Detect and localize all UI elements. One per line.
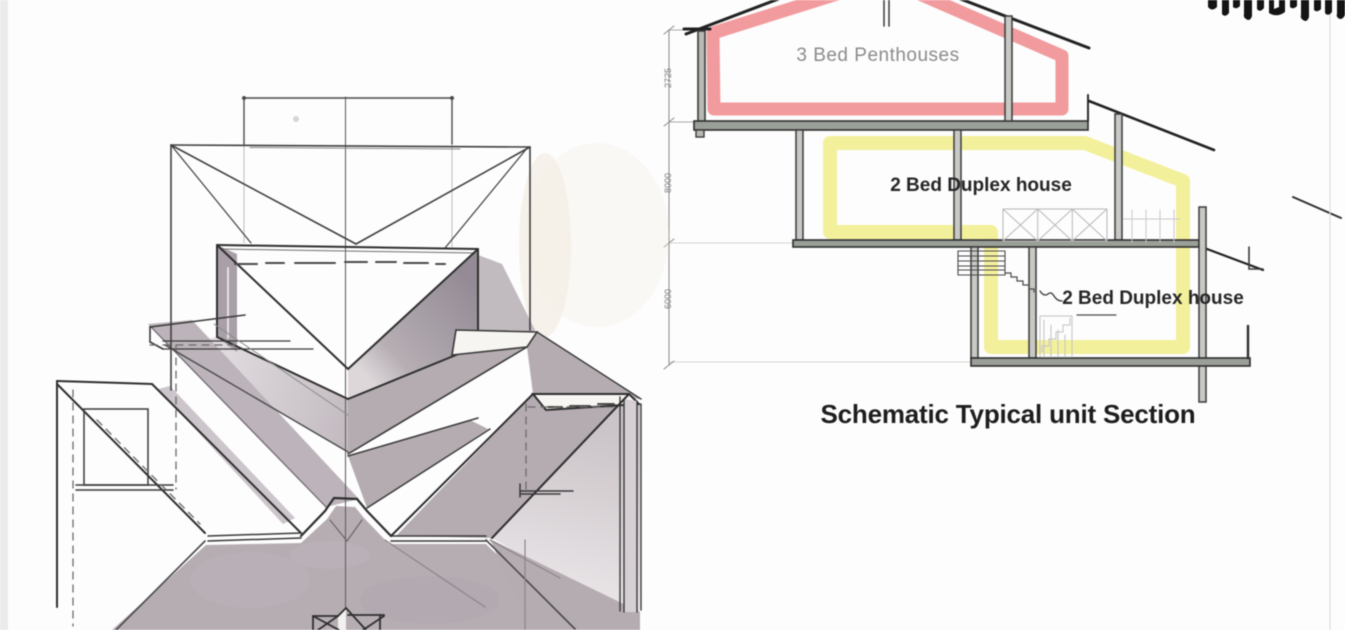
svg-text:Schematic Typical unit Section: Schematic Typical unit Section	[821, 399, 1196, 429]
svg-text:2 Bed Duplex house: 2 Bed Duplex house	[1062, 288, 1244, 309]
svg-text:2 Bed Duplex house: 2 Bed Duplex house	[890, 175, 1072, 196]
svg-text:3 Bed Penthouses: 3 Bed Penthouses	[796, 45, 959, 66]
svg-text:6000: 6000	[663, 289, 673, 309]
svg-text:2725: 2725	[663, 68, 673, 88]
svg-text:8000: 8000	[663, 173, 673, 193]
